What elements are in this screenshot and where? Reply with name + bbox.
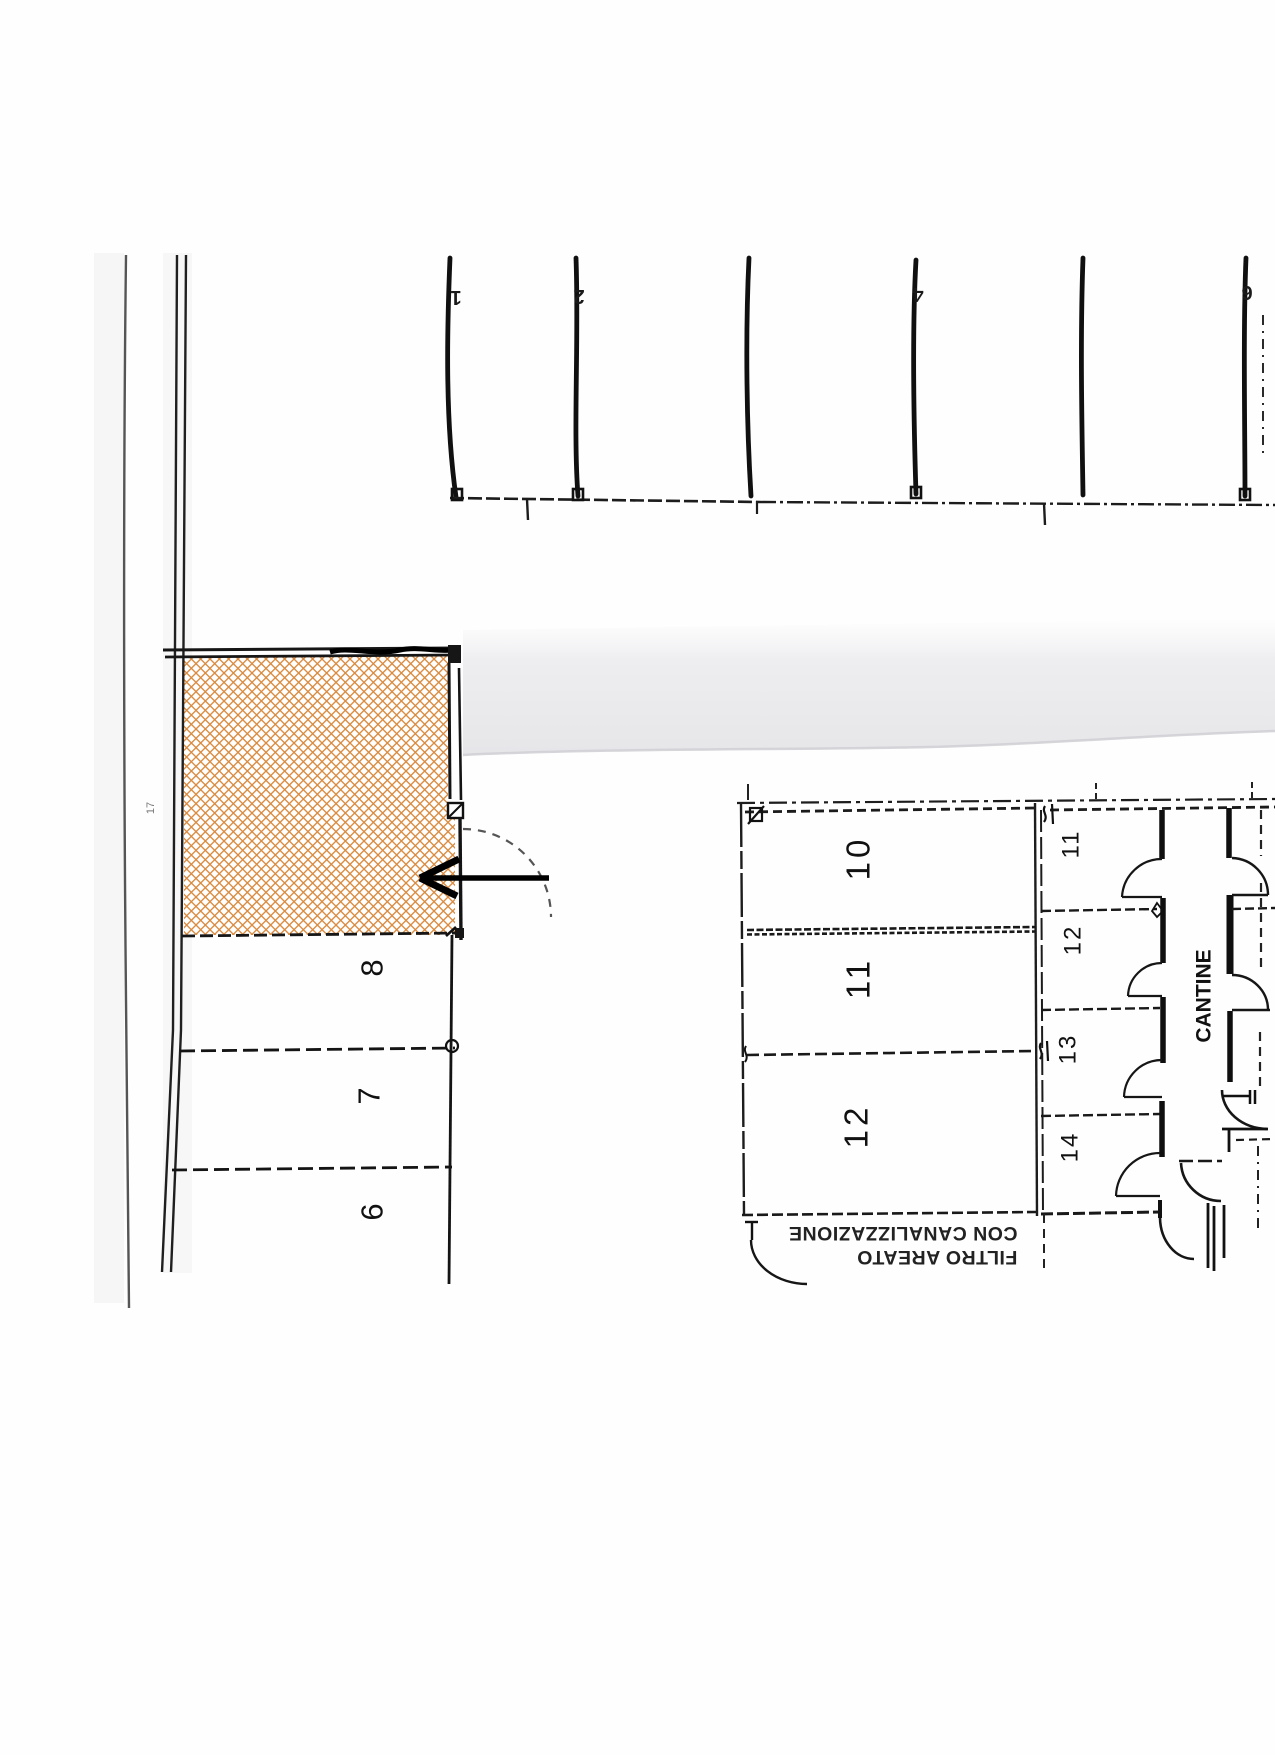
svg-text:CON CANALIZZAZIONE: CON CANALIZZAZIONE	[789, 1222, 1018, 1244]
svg-text:6: 6	[1241, 281, 1252, 303]
svg-text:8: 8	[355, 959, 390, 976]
svg-text:10: 10	[840, 836, 877, 881]
svg-text:4: 4	[912, 283, 924, 305]
svg-text:7: 7	[352, 1087, 387, 1104]
svg-text:1: 1	[450, 286, 461, 308]
svg-text:FILTRO AREATO: FILTRO AREATO	[857, 1246, 1018, 1268]
svg-text:2: 2	[573, 285, 584, 307]
svg-text:11: 11	[840, 957, 877, 999]
svg-text:14: 14	[1057, 1132, 1084, 1163]
svg-text:CANTINE: CANTINE	[1193, 949, 1216, 1042]
svg-text:12: 12	[838, 1104, 875, 1149]
svg-text:13: 13	[1055, 1034, 1082, 1065]
svg-text:11: 11	[1058, 830, 1085, 859]
svg-text:17: 17	[145, 802, 157, 814]
svg-text:12: 12	[1060, 925, 1087, 956]
svg-text:6: 6	[355, 1203, 390, 1220]
